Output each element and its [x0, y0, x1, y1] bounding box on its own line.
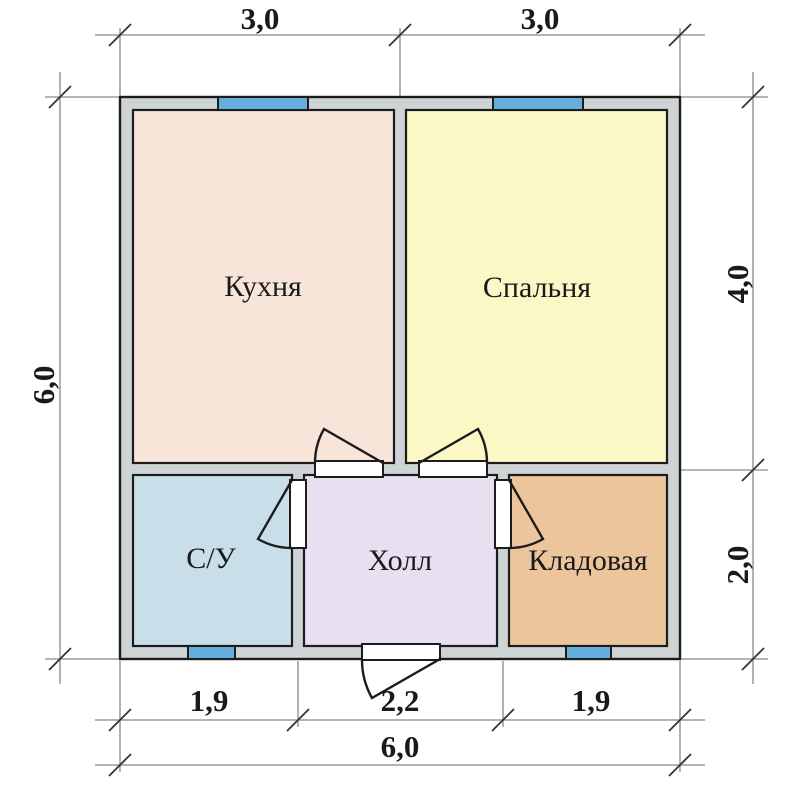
window-kitchen-icon [218, 97, 308, 110]
dim-label-right-upper: 4,0 [720, 265, 755, 304]
door-opening-entrance [362, 644, 440, 660]
dim-label-top-right: 3,0 [521, 1, 560, 36]
dim-label-right-lower: 2,0 [720, 546, 755, 585]
dim-label-bottom-2: 2,2 [381, 683, 420, 718]
window-storage-icon [566, 646, 611, 659]
dim-label-bottom-1: 1,9 [190, 683, 229, 718]
window-bathroom-icon [188, 646, 235, 659]
floor-plan-page: Кухня Спальня С/У Холл Кладовая [0, 0, 800, 800]
floor-plan-canvas: Кухня Спальня С/У Холл Кладовая [0, 0, 800, 800]
door-opening-bedroom [419, 461, 487, 477]
door-opening-kitchen [315, 461, 383, 477]
dim-label-bottom-3: 1,9 [572, 683, 611, 718]
door-opening-storage [495, 480, 511, 548]
dim-label-left-total: 6,0 [26, 366, 61, 405]
dim-label-bottom-total: 6,0 [381, 729, 420, 764]
door-opening-bathroom [290, 480, 306, 548]
room-label-hall: Холл [368, 544, 432, 577]
room-label-kitchen: Кухня [224, 270, 302, 303]
dim-label-top-left: 3,0 [241, 1, 280, 36]
window-bedroom-icon [493, 97, 583, 110]
room-label-storage: Кладовая [528, 544, 648, 577]
room-label-bedroom: Спальня [483, 271, 591, 304]
room-label-bathroom: С/У [186, 542, 236, 575]
